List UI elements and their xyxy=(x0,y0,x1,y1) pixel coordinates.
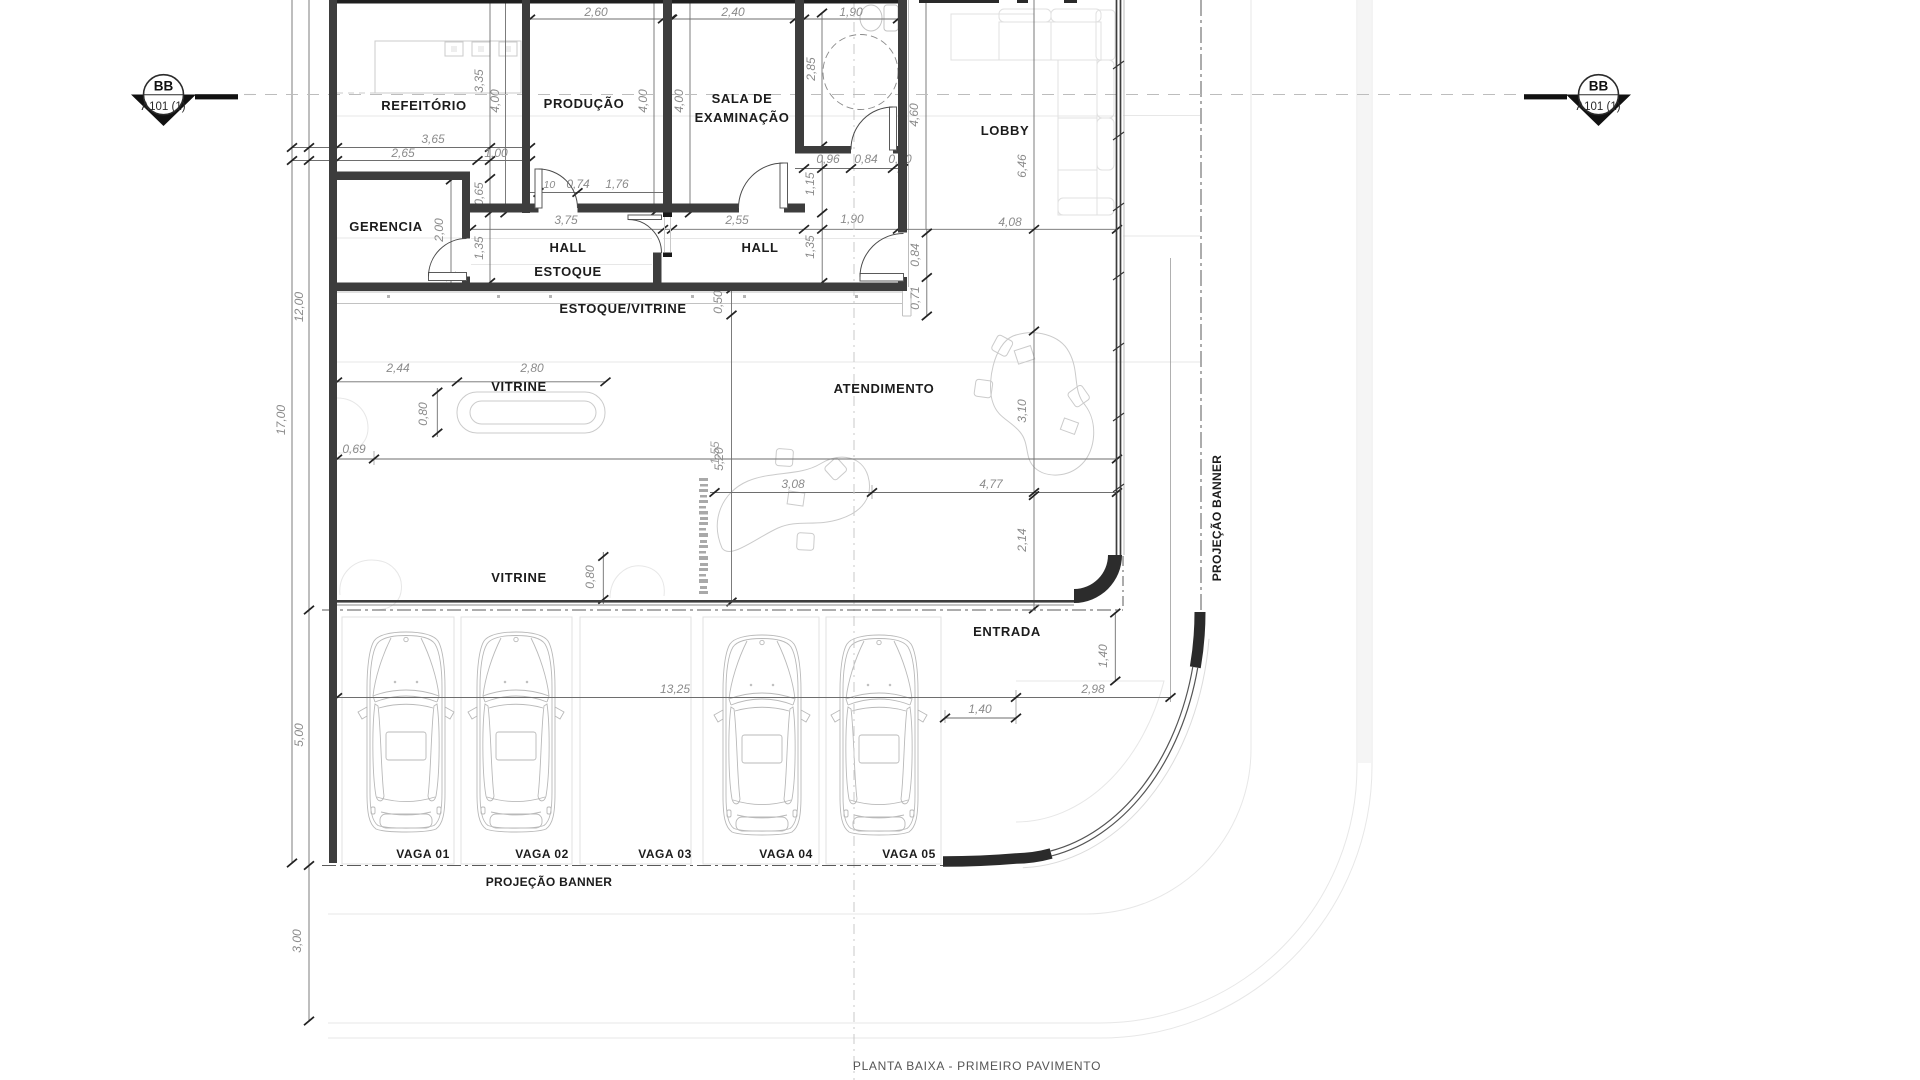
svg-text:ATENDIMENTO: ATENDIMENTO xyxy=(834,381,935,396)
svg-text:LOBBY: LOBBY xyxy=(981,123,1030,138)
svg-text:3,35: 3,35 xyxy=(472,69,486,93)
svg-text:2,55: 2,55 xyxy=(724,213,749,227)
svg-text:A101 (1): A101 (1) xyxy=(1576,101,1620,113)
svg-text:1,15: 1,15 xyxy=(803,172,817,196)
svg-text:3,65: 3,65 xyxy=(421,132,445,146)
svg-text:17,00: 17,00 xyxy=(274,405,288,435)
svg-text:2,40: 2,40 xyxy=(720,5,745,19)
svg-text:0,69: 0,69 xyxy=(342,442,366,456)
svg-text:0,80: 0,80 xyxy=(583,565,597,589)
svg-text:VITRINE: VITRINE xyxy=(491,570,546,585)
svg-text:VAGA 05: VAGA 05 xyxy=(882,847,936,861)
svg-text:2,85: 2,85 xyxy=(804,57,818,82)
svg-text:2,65: 2,65 xyxy=(390,146,415,160)
svg-text:ENTRADA: ENTRADA xyxy=(973,624,1041,639)
svg-text:12,00: 12,00 xyxy=(292,292,306,322)
svg-text:VAGA 01: VAGA 01 xyxy=(396,847,450,861)
svg-text:0,50: 0,50 xyxy=(711,290,725,314)
svg-text:BB: BB xyxy=(1589,79,1609,94)
svg-text:2,80: 2,80 xyxy=(519,361,544,375)
svg-text:2,98: 2,98 xyxy=(1080,682,1105,696)
svg-text:3,08: 3,08 xyxy=(781,477,805,491)
svg-text:GERENCIA: GERENCIA xyxy=(349,219,422,234)
svg-text:0,80: 0,80 xyxy=(416,402,430,426)
svg-text:4,08: 4,08 xyxy=(998,215,1022,229)
svg-text:ESTOQUE/VITRINE: ESTOQUE/VITRINE xyxy=(559,301,686,316)
svg-text:1,76: 1,76 xyxy=(605,177,629,191)
svg-text:HALL: HALL xyxy=(741,240,778,255)
svg-text:PROJEÇÃO BANNER: PROJEÇÃO BANNER xyxy=(486,874,613,889)
svg-text:EXAMINAÇÃO: EXAMINAÇÃO xyxy=(695,110,790,125)
svg-text:1,35: 1,35 xyxy=(472,236,486,260)
svg-text:1,40: 1,40 xyxy=(1096,644,1110,668)
svg-text:2,44: 2,44 xyxy=(385,361,410,375)
svg-text:3,10: 3,10 xyxy=(1015,399,1029,423)
svg-text:2,00: 2,00 xyxy=(432,218,446,243)
svg-text:3,75: 3,75 xyxy=(554,213,578,227)
svg-text:PROJEÇÃO BANNER: PROJEÇÃO BANNER xyxy=(1209,455,1224,582)
svg-text:VITRINE: VITRINE xyxy=(491,379,546,394)
svg-text:1,35: 1,35 xyxy=(803,235,817,259)
svg-text:1,90: 1,90 xyxy=(839,5,863,19)
svg-text:1,40: 1,40 xyxy=(968,702,992,716)
svg-text:0,84: 0,84 xyxy=(908,243,922,267)
svg-text:VAGA 03: VAGA 03 xyxy=(638,847,692,861)
svg-text:2,60: 2,60 xyxy=(583,5,608,19)
svg-text:REFEITÓRIO: REFEITÓRIO xyxy=(381,98,466,113)
svg-text:6,46: 6,46 xyxy=(1015,154,1029,178)
svg-text:ESTOQUE: ESTOQUE xyxy=(534,264,602,279)
svg-text:3,00: 3,00 xyxy=(290,929,304,953)
svg-text:5,00: 5,00 xyxy=(292,723,306,747)
svg-text:PLANTA BAIXA - PRIMEIRO PAVIME: PLANTA BAIXA - PRIMEIRO PAVIMENTO xyxy=(853,1059,1101,1073)
svg-text:VAGA 04: VAGA 04 xyxy=(759,847,813,861)
svg-text:SALA DE: SALA DE xyxy=(712,91,773,106)
svg-text:A101 (1): A101 (1) xyxy=(141,101,185,113)
svg-text:0,71: 0,71 xyxy=(908,286,922,309)
svg-text:4,60: 4,60 xyxy=(907,103,921,127)
svg-text:BB: BB xyxy=(154,79,174,94)
svg-text:0,84: 0,84 xyxy=(854,152,878,166)
svg-text:4,00: 4,00 xyxy=(636,89,650,113)
svg-text:4,77: 4,77 xyxy=(979,477,1004,491)
svg-text:VAGA 02: VAGA 02 xyxy=(515,847,569,861)
svg-text:4,00: 4,00 xyxy=(488,89,502,113)
svg-text:4,00: 4,00 xyxy=(672,89,686,113)
svg-text:HALL: HALL xyxy=(549,240,586,255)
svg-text:1,90: 1,90 xyxy=(840,212,864,226)
svg-text:0,96: 0,96 xyxy=(816,152,840,166)
svg-text:2,14: 2,14 xyxy=(1015,528,1029,553)
svg-text:PRODUÇÃO: PRODUÇÃO xyxy=(544,96,625,111)
svg-text:13,25: 13,25 xyxy=(660,682,690,696)
svg-text:1,55: 1,55 xyxy=(708,441,722,465)
svg-text:0,65: 0,65 xyxy=(472,182,486,206)
svg-text:1,00: 1,00 xyxy=(484,146,508,160)
